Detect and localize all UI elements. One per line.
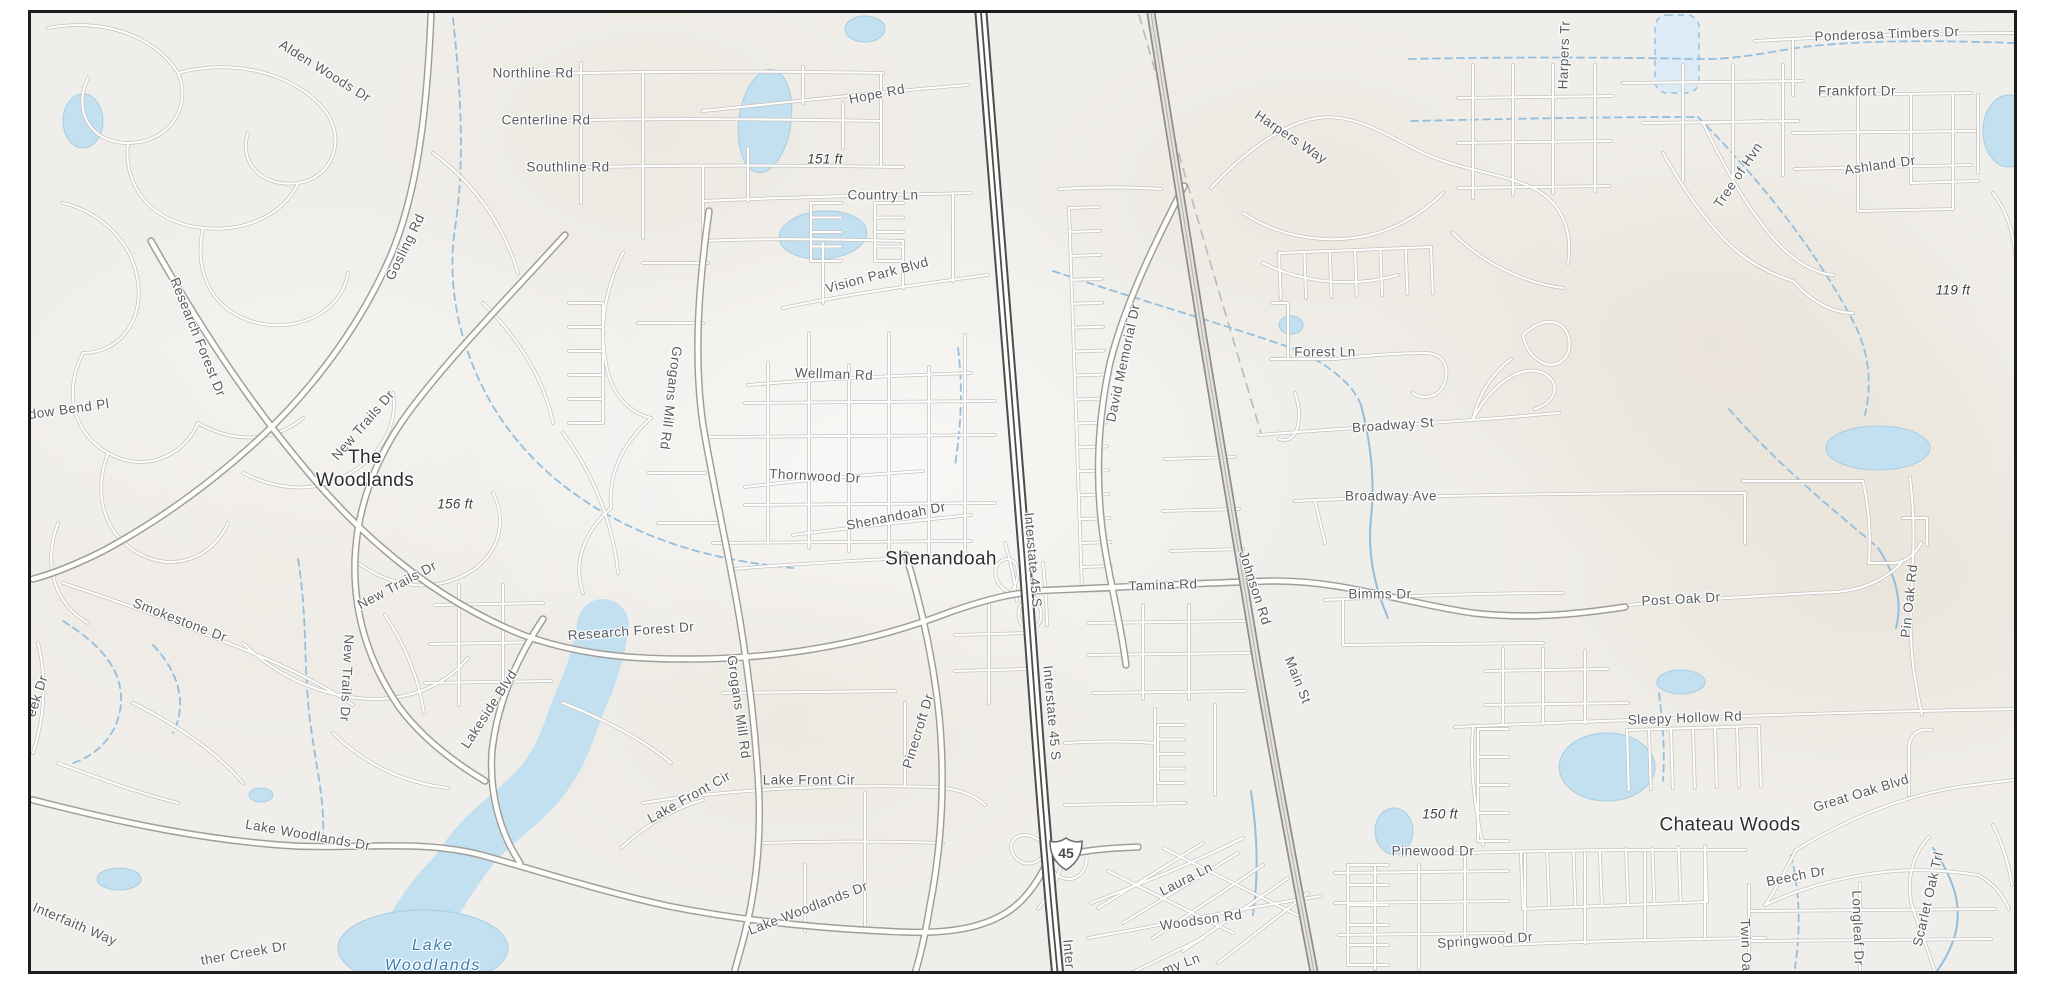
street-label: Lake Front Cir [763,773,856,788]
street-label: Pinewood Dr [1392,844,1475,859]
street-label: Centerline Rd [501,113,590,128]
street-label: Tamina Rd [1128,576,1198,593]
street-label: Twin Oa [1738,918,1755,972]
street-label: Harpers Tr [1555,20,1572,89]
street-label: Country Ln [847,188,918,203]
street-label: Northline Rd [492,66,573,81]
elevation-label: 156 ft [437,497,473,512]
water-label: Lake Woodlands [385,936,481,974]
place-label: Chateau Woods [1659,813,1800,836]
street-label: Inter [1060,939,1078,970]
street-label: Southline Rd [526,160,609,175]
street-label: Wellman Rd [795,365,874,383]
page: { "map": { "region": "street map of The … [0,0,2048,989]
street-label: Longleaf Dr [1849,890,1867,966]
place-label: The Woodlands [316,446,414,492]
street-label: Forest Ln [1294,345,1356,360]
street-label: Bimms Dr [1348,587,1411,602]
elevation-label: 119 ft [1936,283,1971,298]
place-label: Shenandoah [885,547,997,570]
map-canvas: Alden Woods DrNorthline RdCenterline RdS… [28,10,2017,974]
interstate-45-shield: 45 [1048,836,1084,872]
street-label: Broadway Ave [1345,489,1437,504]
elevation-label: 151 ft [807,152,843,167]
shield-number: 45 [1048,845,1084,861]
street-label: Frankfort Dr [1818,84,1896,99]
elevation-label: 150 ft [1422,807,1458,822]
map-viewport[interactable]: Alden Woods DrNorthline RdCenterline RdS… [28,10,2017,974]
